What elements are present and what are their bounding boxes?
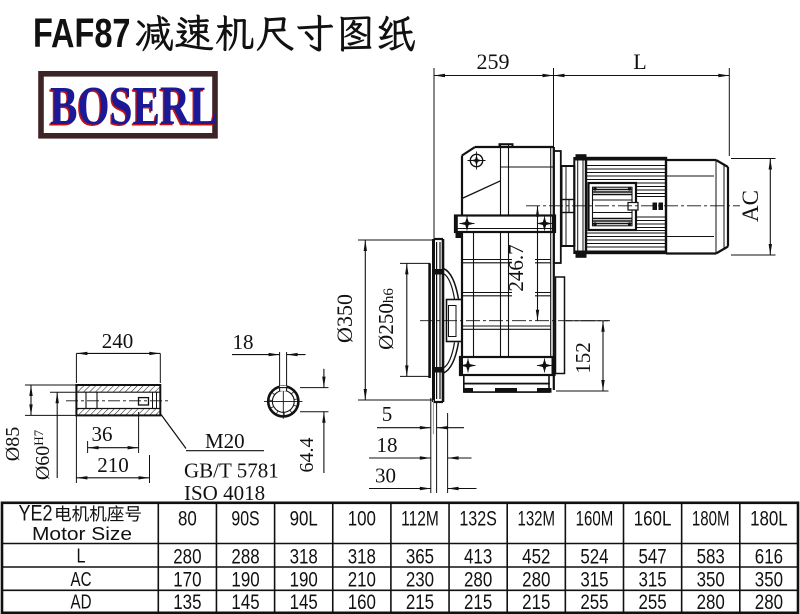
svg-text:280: 280: [697, 590, 725, 614]
svg-text:365: 365: [406, 545, 434, 569]
svg-text:215: 215: [464, 590, 492, 614]
svg-text:AC: AC: [71, 569, 92, 591]
svg-text:240: 240: [102, 329, 134, 353]
svg-text:215: 215: [522, 590, 550, 614]
svg-text:280: 280: [522, 568, 550, 592]
svg-text:132M: 132M: [517, 507, 555, 531]
svg-text:30: 30: [375, 464, 396, 488]
svg-text:5: 5: [382, 402, 393, 426]
svg-text:318: 318: [290, 545, 318, 569]
svg-text:210: 210: [348, 568, 376, 592]
svg-text:616: 616: [755, 545, 783, 569]
svg-text:524: 524: [580, 545, 608, 569]
svg-text:L: L: [77, 546, 86, 568]
svg-text:135: 135: [173, 590, 201, 614]
svg-text:413: 413: [464, 545, 492, 569]
svg-text:M20: M20: [205, 429, 245, 453]
svg-text:36: 36: [92, 422, 113, 446]
svg-text:452: 452: [522, 545, 550, 569]
svg-text:ISO 4018: ISO 4018: [184, 481, 265, 505]
svg-text:288: 288: [231, 545, 259, 569]
svg-text:AD: AD: [71, 592, 92, 614]
svg-text:90S: 90S: [231, 507, 259, 531]
svg-text:64.4: 64.4: [296, 438, 318, 473]
svg-text:18: 18: [233, 330, 254, 354]
svg-text:80: 80: [178, 507, 197, 531]
svg-text:170: 170: [173, 568, 201, 592]
svg-text:Ø350: Ø350: [332, 294, 357, 343]
svg-text:Motor Size: Motor Size: [32, 524, 132, 544]
svg-text:160M: 160M: [576, 507, 614, 531]
svg-text:160L: 160L: [634, 507, 672, 531]
svg-text:246.7: 246.7: [504, 244, 528, 291]
svg-text:145: 145: [231, 590, 259, 614]
svg-text:190: 190: [231, 568, 259, 592]
svg-text:152: 152: [571, 342, 595, 374]
svg-text:L: L: [633, 49, 646, 74]
svg-text:255: 255: [580, 590, 608, 614]
svg-text:FAF87: FAF87: [33, 10, 131, 56]
svg-text:Ø85: Ø85: [2, 427, 24, 461]
svg-text:GB/T 5781: GB/T 5781: [184, 459, 279, 483]
svg-text:100: 100: [348, 507, 376, 531]
svg-text:18: 18: [377, 433, 398, 457]
svg-text:132S: 132S: [459, 507, 497, 531]
svg-text:280: 280: [755, 590, 783, 614]
svg-text:280: 280: [173, 545, 201, 569]
svg-text:318: 318: [348, 545, 376, 569]
svg-text:BOSERL: BOSERL: [50, 75, 217, 136]
svg-text:YE2: YE2: [19, 501, 53, 526]
svg-text:145: 145: [290, 590, 318, 614]
svg-text:215: 215: [406, 590, 434, 614]
svg-text:180L: 180L: [750, 507, 788, 531]
svg-text:180M: 180M: [692, 507, 730, 531]
svg-text:547: 547: [638, 545, 666, 569]
svg-text:90L: 90L: [290, 507, 318, 531]
svg-text:280: 280: [464, 568, 492, 592]
svg-text:190: 190: [290, 568, 318, 592]
svg-text:315: 315: [638, 568, 666, 592]
svg-text:230: 230: [406, 568, 434, 592]
svg-text:160: 160: [348, 590, 376, 614]
svg-text:350: 350: [755, 568, 783, 592]
svg-text:583: 583: [697, 545, 725, 569]
svg-text:112M: 112M: [401, 507, 439, 531]
svg-text:350: 350: [697, 568, 725, 592]
svg-text:255: 255: [638, 590, 666, 614]
svg-text:210: 210: [97, 453, 129, 477]
svg-text:315: 315: [580, 568, 608, 592]
svg-text:259: 259: [477, 49, 510, 74]
svg-text:AC: AC: [738, 190, 763, 222]
